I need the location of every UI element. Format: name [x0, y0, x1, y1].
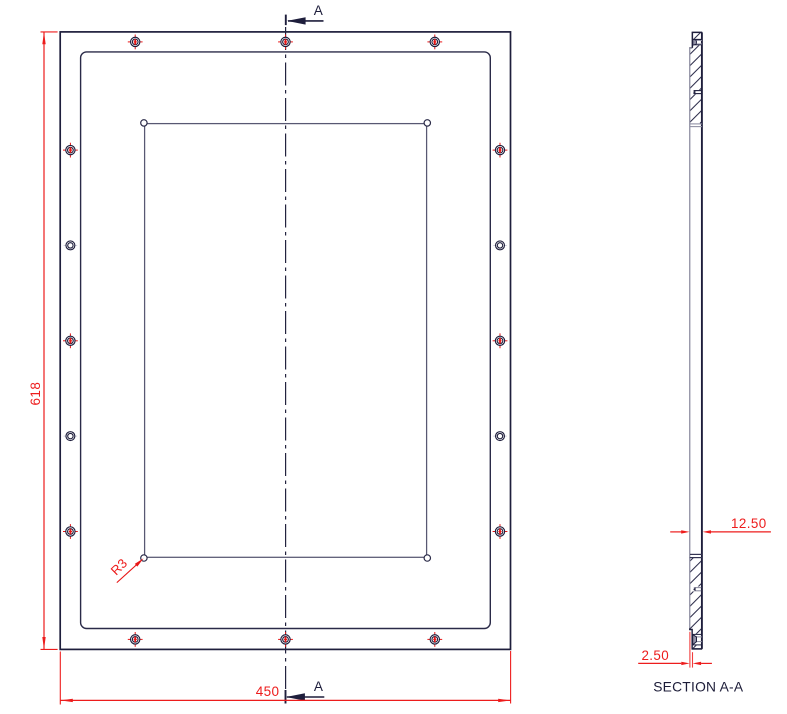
svg-text:618: 618: [28, 382, 43, 406]
svg-text:2.50: 2.50: [641, 648, 669, 663]
svg-text:A: A: [314, 3, 324, 18]
svg-text:R3: R3: [108, 556, 130, 578]
svg-text:A: A: [314, 679, 324, 694]
svg-text:12.50: 12.50: [731, 516, 767, 531]
svg-text:450: 450: [256, 684, 280, 699]
svg-text:SECTION A-A: SECTION A-A: [653, 679, 744, 694]
